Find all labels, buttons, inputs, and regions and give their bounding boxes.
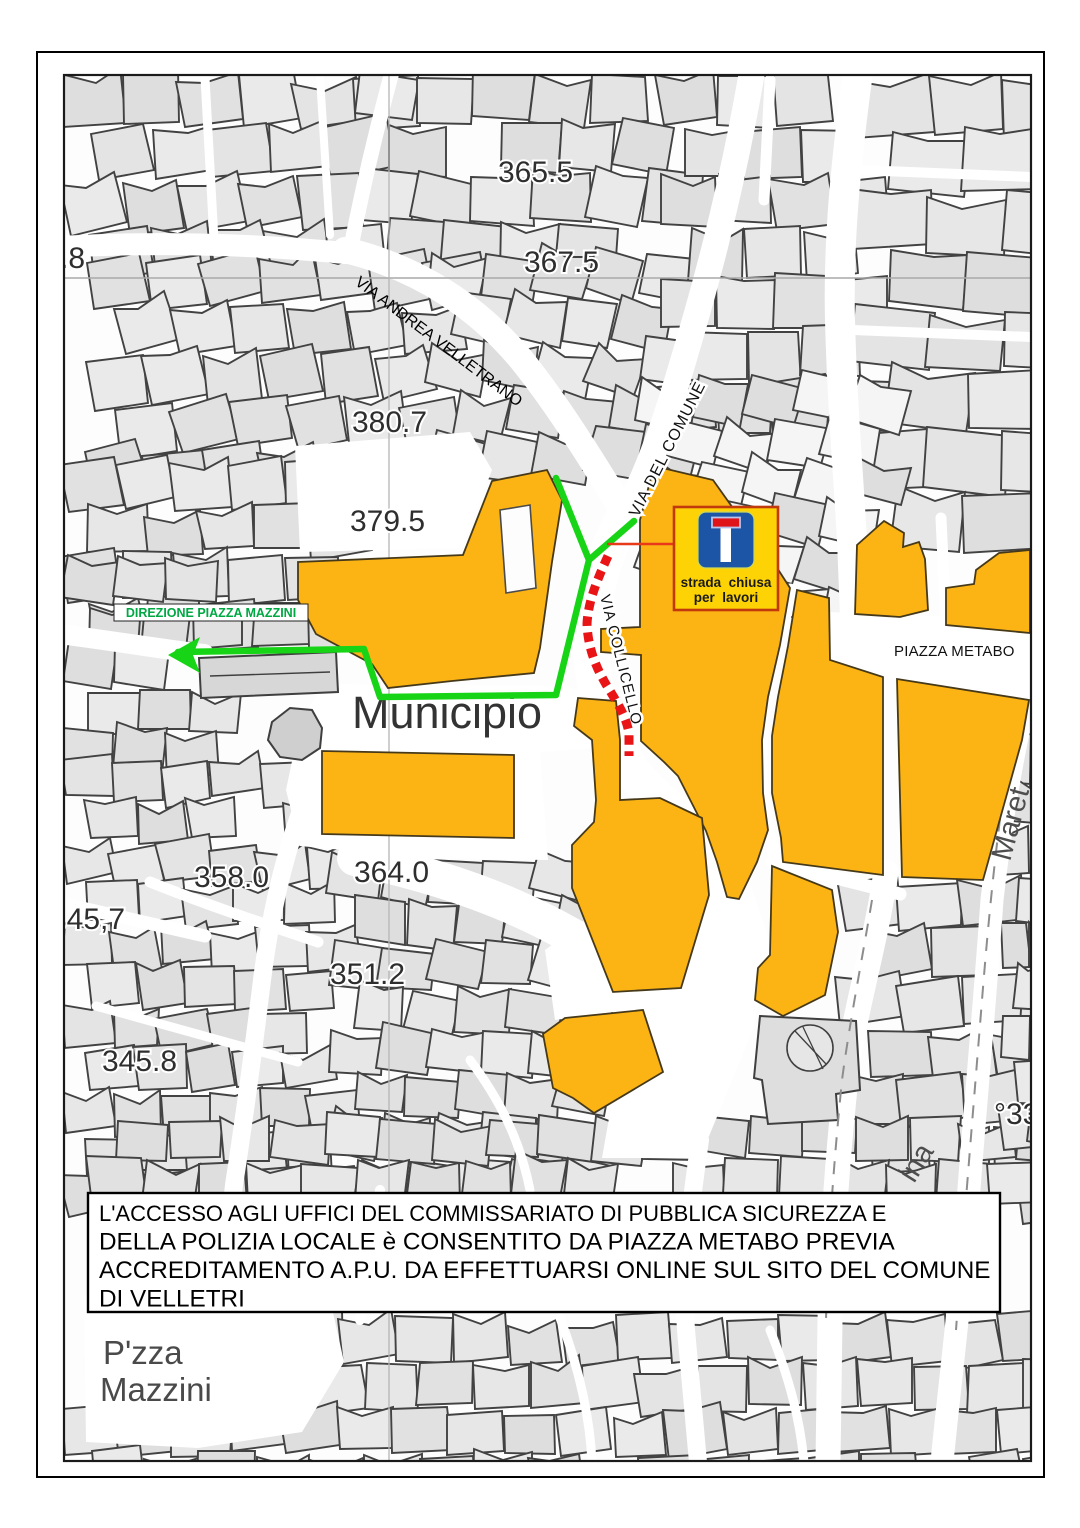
svg-text:DIREZIONE PIAZZA MAZZINI: DIREZIONE PIAZZA MAZZINI [126,606,296,620]
svg-text:345.8: 345.8 [102,1045,177,1078]
svg-text:380.7: 380.7 [352,406,427,439]
svg-text:364.0: 364.0 [354,856,429,889]
svg-text:ACCREDITAMENTO A.P.U. DA EFFET: ACCREDITAMENTO A.P.U. DA EFFETTUARSI ONL… [99,1257,991,1284]
svg-text:379.5: 379.5 [350,505,425,538]
svg-text:strada chiusa: strada chiusa [681,575,772,590]
svg-text:367.5: 367.5 [524,246,599,279]
svg-text:365.5: 365.5 [498,156,573,189]
svg-text:PIAZZA METABO: PIAZZA METABO [894,643,1015,660]
svg-text:L'ACCESSO AGLI UFFICI DEL COMM: L'ACCESSO AGLI UFFICI DEL COMMISSARIATO … [99,1201,886,1226]
svg-text:358.0: 358.0 [194,861,269,894]
svg-text:DELLA POLIZIA LOCALE è CONSENT: DELLA POLIZIA LOCALE è CONSENTITO DA PIA… [99,1229,896,1256]
svg-text:Pʹzza: Pʹzza [103,1334,183,1371]
svg-text:Mazzini: Mazzini [100,1371,212,1408]
svg-text:DI VELLETRI: DI VELLETRI [99,1286,245,1313]
svg-text:351.2: 351.2 [330,958,405,991]
svg-text:per lavori: per lavori [694,590,759,605]
